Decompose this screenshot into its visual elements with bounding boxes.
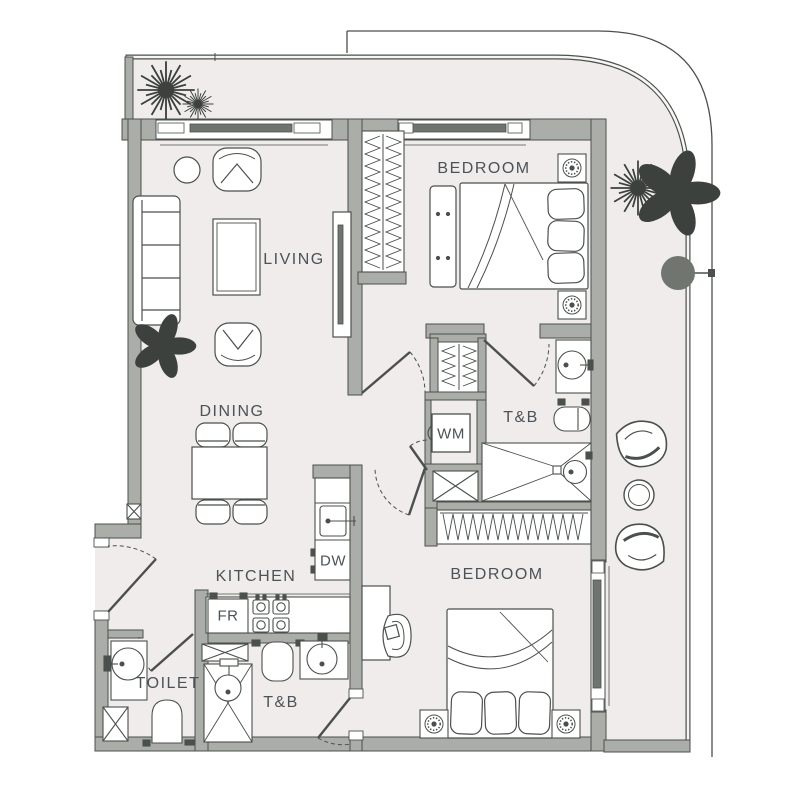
dining-chair [196,500,230,524]
vent-bed-bottom-1 [420,710,448,738]
bed-bottom [447,609,553,738]
balcony-table [624,480,654,510]
room-label-bedroom-top: BEDROOM [437,160,530,178]
appliance-label-dw: DW [320,553,346,570]
room-label-kitchen: KITCHEN [216,568,297,586]
dining-chair [196,423,230,447]
sofa [133,196,180,325]
room-label-bath-top: T&B [503,409,539,427]
tv-panel [333,212,351,337]
dining-chair [233,500,267,524]
wardrobe-mid [438,342,478,392]
bedroom-top-furniture [430,183,588,289]
bench [430,186,456,287]
sink-bath-top [556,340,593,393]
room-label-living: LIVING [263,251,324,269]
armchair-bottom [215,323,261,366]
sink-bath-bottom [300,634,348,679]
balcony-chair-2 [615,523,665,570]
dining-furniture [192,423,267,524]
dishwasher-hinge [311,566,315,573]
shower-bath-bottom [204,659,252,742]
dishwasher-hinge [311,549,315,556]
vent-bed-top-2 [558,291,586,319]
closet-bedroom-bottom [437,510,591,544]
dining-table [192,447,267,499]
vent-bed-bottom-2 [552,710,580,738]
structural-column [661,256,715,290]
wall-shaft-marker [127,504,141,519]
side-table [174,157,200,183]
room-label-bath-bottom: T&B [263,694,299,712]
coffee-table [213,219,260,295]
toilet-shaft [103,707,128,741]
room-label-bedroom-bottom: BEDROOM [450,566,543,584]
appliance-label-wm: WM [437,426,465,443]
floor-plan: LIVING DINING KITCHEN BEDROOM BEDROOM T&… [0,0,800,800]
hall-shaft [433,471,478,501]
armchair-top [213,148,261,191]
wardrobe-top [362,131,404,272]
dining-chair [233,423,267,447]
floor-plan-drawing [0,0,800,800]
appliance-label-fr: FR [218,608,239,625]
desk-chair [383,614,411,657]
room-label-toilet: TOILET [136,675,201,693]
room-label-dining: DINING [200,403,265,421]
bed-top [460,183,588,289]
shower-bath-top [482,443,592,501]
vent-bed-top-1 [558,154,586,182]
